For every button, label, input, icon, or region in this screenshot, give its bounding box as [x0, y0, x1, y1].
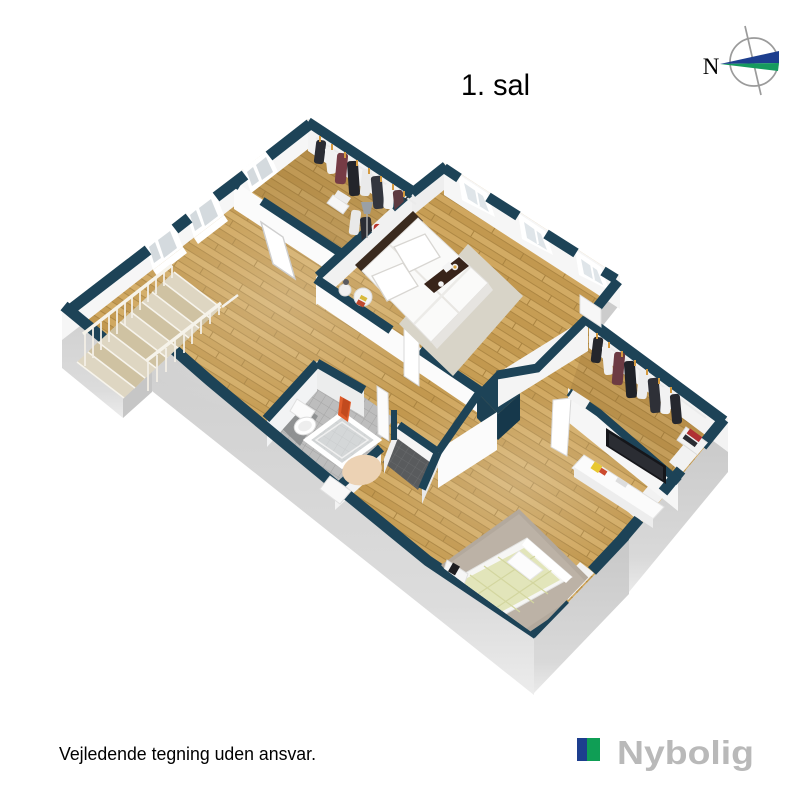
svg-text:Vejledende tegning uden ansvar: Vejledende tegning uden ansvar. [59, 743, 316, 764]
svg-text:1. sal: 1. sal [461, 69, 530, 102]
svg-text:N: N [703, 54, 720, 79]
svg-text:Nybolig: Nybolig [617, 734, 754, 771]
